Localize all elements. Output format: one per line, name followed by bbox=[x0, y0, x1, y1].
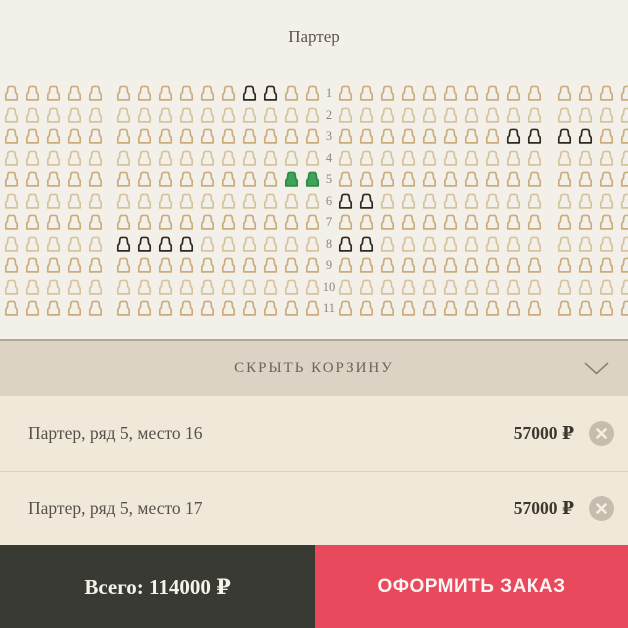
seat-available[interactable] bbox=[484, 214, 501, 231]
seat-available[interactable] bbox=[66, 214, 83, 231]
seat-available[interactable] bbox=[400, 300, 417, 317]
seat-available[interactable] bbox=[3, 150, 20, 167]
seat-available[interactable] bbox=[283, 257, 300, 274]
seat-available[interactable] bbox=[400, 107, 417, 124]
seat-available[interactable] bbox=[379, 150, 396, 167]
seat-available[interactable] bbox=[220, 236, 237, 253]
seat-available[interactable] bbox=[45, 107, 62, 124]
seat-available[interactable] bbox=[358, 150, 375, 167]
seat-available[interactable] bbox=[136, 214, 153, 231]
seat-available[interactable] bbox=[400, 150, 417, 167]
seat-available[interactable] bbox=[199, 128, 216, 145]
seat-available[interactable] bbox=[421, 85, 438, 102]
seat-available[interactable] bbox=[24, 107, 41, 124]
seat-available[interactable] bbox=[24, 193, 41, 210]
seat-available[interactable] bbox=[136, 257, 153, 274]
seat-available[interactable] bbox=[358, 128, 375, 145]
seat-available[interactable] bbox=[619, 171, 628, 188]
seat-unavailable[interactable] bbox=[337, 236, 354, 253]
seat-available[interactable] bbox=[45, 214, 62, 231]
seat-available[interactable] bbox=[178, 128, 195, 145]
seat-available[interactable] bbox=[262, 236, 279, 253]
seat-available[interactable] bbox=[3, 214, 20, 231]
seat-available[interactable] bbox=[379, 107, 396, 124]
seat-unavailable[interactable] bbox=[262, 85, 279, 102]
seat-available[interactable] bbox=[400, 257, 417, 274]
seat-available[interactable] bbox=[66, 236, 83, 253]
seat-available[interactable] bbox=[358, 107, 375, 124]
seat-available[interactable] bbox=[598, 300, 615, 317]
seat-available[interactable] bbox=[358, 279, 375, 296]
seat-available[interactable] bbox=[87, 128, 104, 145]
seat-available[interactable] bbox=[241, 128, 258, 145]
seat-available[interactable] bbox=[178, 193, 195, 210]
seat-available[interactable] bbox=[337, 171, 354, 188]
seat-available[interactable] bbox=[199, 214, 216, 231]
seat-available[interactable] bbox=[505, 214, 522, 231]
seat-available[interactable] bbox=[3, 107, 20, 124]
seat-available[interactable] bbox=[484, 257, 501, 274]
seat-available[interactable] bbox=[379, 193, 396, 210]
seat-available[interactable] bbox=[3, 279, 20, 296]
seat-available[interactable] bbox=[598, 85, 615, 102]
seat-unavailable[interactable] bbox=[115, 236, 132, 253]
seat-available[interactable] bbox=[577, 85, 594, 102]
seat-available[interactable] bbox=[66, 257, 83, 274]
seat-available[interactable] bbox=[136, 128, 153, 145]
seat-available[interactable] bbox=[442, 107, 459, 124]
remove-item-button[interactable] bbox=[589, 496, 614, 521]
seat-available[interactable] bbox=[241, 193, 258, 210]
seat-available[interactable] bbox=[157, 193, 174, 210]
seat-available[interactable] bbox=[619, 85, 628, 102]
seat-available[interactable] bbox=[577, 171, 594, 188]
seat-available[interactable] bbox=[87, 193, 104, 210]
seat-available[interactable] bbox=[262, 171, 279, 188]
seat-available[interactable] bbox=[199, 257, 216, 274]
seat-available[interactable] bbox=[379, 214, 396, 231]
remove-item-button[interactable] bbox=[589, 421, 614, 446]
seat-available[interactable] bbox=[526, 107, 543, 124]
seat-available[interactable] bbox=[45, 128, 62, 145]
seat-available[interactable] bbox=[157, 257, 174, 274]
seat-available[interactable] bbox=[241, 279, 258, 296]
seat-available[interactable] bbox=[66, 300, 83, 317]
seat-available[interactable] bbox=[283, 150, 300, 167]
seat-available[interactable] bbox=[157, 150, 174, 167]
seat-available[interactable] bbox=[421, 193, 438, 210]
seat-available[interactable] bbox=[421, 236, 438, 253]
seat-available[interactable] bbox=[3, 236, 20, 253]
seat-available[interactable] bbox=[45, 236, 62, 253]
seat-available[interactable] bbox=[262, 279, 279, 296]
seat-available[interactable] bbox=[87, 171, 104, 188]
seat-available[interactable] bbox=[400, 279, 417, 296]
seat-available[interactable] bbox=[178, 279, 195, 296]
seat-available[interactable] bbox=[241, 236, 258, 253]
seat-available[interactable] bbox=[157, 300, 174, 317]
seat-available[interactable] bbox=[556, 85, 573, 102]
seat-available[interactable] bbox=[304, 300, 321, 317]
seat-available[interactable] bbox=[3, 300, 20, 317]
seat-available[interactable] bbox=[400, 193, 417, 210]
seat-available[interactable] bbox=[136, 300, 153, 317]
seat-available[interactable] bbox=[199, 300, 216, 317]
seat-available[interactable] bbox=[157, 214, 174, 231]
seat-unavailable[interactable] bbox=[505, 128, 522, 145]
seat-available[interactable] bbox=[505, 257, 522, 274]
seat-available[interactable] bbox=[421, 171, 438, 188]
seat-available[interactable] bbox=[337, 279, 354, 296]
seat-available[interactable] bbox=[115, 85, 132, 102]
seat-available[interactable] bbox=[463, 150, 480, 167]
seat-available[interactable] bbox=[304, 257, 321, 274]
seat-available[interactable] bbox=[337, 214, 354, 231]
seat-available[interactable] bbox=[220, 257, 237, 274]
seat-available[interactable] bbox=[136, 85, 153, 102]
seat-available[interactable] bbox=[220, 150, 237, 167]
seat-available[interactable] bbox=[442, 150, 459, 167]
seat-available[interactable] bbox=[421, 128, 438, 145]
seat-available[interactable] bbox=[526, 150, 543, 167]
seat-available[interactable] bbox=[463, 257, 480, 274]
seat-available[interactable] bbox=[304, 128, 321, 145]
seat-available[interactable] bbox=[157, 85, 174, 102]
seat-available[interactable] bbox=[199, 236, 216, 253]
seat-unavailable[interactable] bbox=[556, 128, 573, 145]
seat-available[interactable] bbox=[199, 193, 216, 210]
seat-unavailable[interactable] bbox=[358, 193, 375, 210]
seat-available[interactable] bbox=[526, 193, 543, 210]
seat-available[interactable] bbox=[45, 279, 62, 296]
seat-available[interactable] bbox=[220, 193, 237, 210]
seat-available[interactable] bbox=[304, 193, 321, 210]
seat-available[interactable] bbox=[556, 236, 573, 253]
seat-available[interactable] bbox=[421, 257, 438, 274]
seat-available[interactable] bbox=[379, 85, 396, 102]
seat-available[interactable] bbox=[241, 300, 258, 317]
seat-available[interactable] bbox=[24, 257, 41, 274]
seat-available[interactable] bbox=[598, 128, 615, 145]
seat-available[interactable] bbox=[178, 214, 195, 231]
seat-available[interactable] bbox=[283, 300, 300, 317]
seat-available[interactable] bbox=[220, 107, 237, 124]
seat-available[interactable] bbox=[304, 279, 321, 296]
seat-available[interactable] bbox=[484, 193, 501, 210]
seat-available[interactable] bbox=[283, 193, 300, 210]
seat-available[interactable] bbox=[556, 214, 573, 231]
seat-available[interactable] bbox=[400, 171, 417, 188]
seat-selected[interactable] bbox=[283, 171, 300, 188]
seat-available[interactable] bbox=[66, 279, 83, 296]
seat-available[interactable] bbox=[262, 128, 279, 145]
seat-available[interactable] bbox=[283, 214, 300, 231]
seat-available[interactable] bbox=[262, 150, 279, 167]
seat-available[interactable] bbox=[442, 236, 459, 253]
seat-available[interactable] bbox=[442, 193, 459, 210]
seat-available[interactable] bbox=[3, 257, 20, 274]
seat-available[interactable] bbox=[24, 300, 41, 317]
seat-available[interactable] bbox=[379, 300, 396, 317]
seat-available[interactable] bbox=[619, 128, 628, 145]
seat-unavailable[interactable] bbox=[241, 85, 258, 102]
seat-available[interactable] bbox=[304, 150, 321, 167]
seat-available[interactable] bbox=[66, 150, 83, 167]
seat-available[interactable] bbox=[178, 300, 195, 317]
seat-available[interactable] bbox=[463, 193, 480, 210]
seat-available[interactable] bbox=[220, 171, 237, 188]
seat-available[interactable] bbox=[45, 150, 62, 167]
seat-available[interactable] bbox=[379, 171, 396, 188]
seat-available[interactable] bbox=[358, 257, 375, 274]
seat-available[interactable] bbox=[337, 128, 354, 145]
seat-available[interactable] bbox=[505, 85, 522, 102]
seat-available[interactable] bbox=[304, 85, 321, 102]
seat-available[interactable] bbox=[577, 107, 594, 124]
seat-available[interactable] bbox=[442, 128, 459, 145]
seat-unavailable[interactable] bbox=[358, 236, 375, 253]
seat-available[interactable] bbox=[442, 300, 459, 317]
seat-available[interactable] bbox=[619, 107, 628, 124]
seat-available[interactable] bbox=[337, 150, 354, 167]
seat-available[interactable] bbox=[241, 150, 258, 167]
seat-available[interactable] bbox=[505, 236, 522, 253]
seat-unavailable[interactable] bbox=[178, 236, 195, 253]
seat-available[interactable] bbox=[115, 150, 132, 167]
seat-available[interactable] bbox=[484, 300, 501, 317]
seat-available[interactable] bbox=[262, 214, 279, 231]
seat-available[interactable] bbox=[87, 107, 104, 124]
seat-available[interactable] bbox=[598, 214, 615, 231]
seat-available[interactable] bbox=[199, 171, 216, 188]
seat-available[interactable] bbox=[556, 107, 573, 124]
seat-available[interactable] bbox=[379, 279, 396, 296]
seat-available[interactable] bbox=[283, 107, 300, 124]
seat-available[interactable] bbox=[87, 279, 104, 296]
seat-available[interactable] bbox=[484, 85, 501, 102]
seat-available[interactable] bbox=[463, 85, 480, 102]
seat-available[interactable] bbox=[526, 279, 543, 296]
seat-available[interactable] bbox=[619, 236, 628, 253]
seat-available[interactable] bbox=[115, 107, 132, 124]
seat-available[interactable] bbox=[24, 150, 41, 167]
seat-available[interactable] bbox=[136, 150, 153, 167]
seat-available[interactable] bbox=[199, 150, 216, 167]
seat-available[interactable] bbox=[262, 107, 279, 124]
seat-available[interactable] bbox=[199, 279, 216, 296]
seat-available[interactable] bbox=[463, 171, 480, 188]
seat-available[interactable] bbox=[556, 193, 573, 210]
seat-available[interactable] bbox=[505, 279, 522, 296]
seat-available[interactable] bbox=[421, 150, 438, 167]
seat-unavailable[interactable] bbox=[526, 128, 543, 145]
seat-available[interactable] bbox=[220, 85, 237, 102]
seat-available[interactable] bbox=[66, 85, 83, 102]
seat-unavailable[interactable] bbox=[337, 193, 354, 210]
seat-available[interactable] bbox=[262, 300, 279, 317]
seat-available[interactable] bbox=[115, 214, 132, 231]
seat-unavailable[interactable] bbox=[136, 236, 153, 253]
seat-available[interactable] bbox=[262, 257, 279, 274]
seat-available[interactable] bbox=[115, 193, 132, 210]
seat-available[interactable] bbox=[115, 171, 132, 188]
seat-available[interactable] bbox=[115, 279, 132, 296]
seat-available[interactable] bbox=[379, 257, 396, 274]
seat-available[interactable] bbox=[24, 214, 41, 231]
seat-available[interactable] bbox=[598, 257, 615, 274]
seat-available[interactable] bbox=[577, 193, 594, 210]
seat-available[interactable] bbox=[598, 107, 615, 124]
seat-available[interactable] bbox=[598, 279, 615, 296]
seat-available[interactable] bbox=[3, 171, 20, 188]
seat-available[interactable] bbox=[24, 279, 41, 296]
seat-available[interactable] bbox=[442, 85, 459, 102]
seat-available[interactable] bbox=[220, 279, 237, 296]
seat-available[interactable] bbox=[304, 236, 321, 253]
seat-available[interactable] bbox=[136, 279, 153, 296]
seat-available[interactable] bbox=[400, 236, 417, 253]
seat-available[interactable] bbox=[3, 193, 20, 210]
seat-available[interactable] bbox=[157, 107, 174, 124]
seat-available[interactable] bbox=[66, 128, 83, 145]
seat-available[interactable] bbox=[598, 150, 615, 167]
seat-available[interactable] bbox=[178, 150, 195, 167]
seat-available[interactable] bbox=[45, 193, 62, 210]
seat-available[interactable] bbox=[24, 236, 41, 253]
seat-available[interactable] bbox=[619, 214, 628, 231]
seat-available[interactable] bbox=[3, 85, 20, 102]
seat-available[interactable] bbox=[157, 171, 174, 188]
seat-available[interactable] bbox=[178, 107, 195, 124]
seat-available[interactable] bbox=[241, 214, 258, 231]
seat-available[interactable] bbox=[484, 128, 501, 145]
seat-available[interactable] bbox=[556, 279, 573, 296]
seat-available[interactable] bbox=[220, 214, 237, 231]
seat-available[interactable] bbox=[24, 85, 41, 102]
seat-available[interactable] bbox=[337, 107, 354, 124]
seat-available[interactable] bbox=[66, 171, 83, 188]
seat-available[interactable] bbox=[619, 300, 628, 317]
seat-available[interactable] bbox=[484, 107, 501, 124]
seat-available[interactable] bbox=[87, 236, 104, 253]
seat-available[interactable] bbox=[157, 128, 174, 145]
seat-available[interactable] bbox=[463, 214, 480, 231]
seat-available[interactable] bbox=[463, 128, 480, 145]
seat-available[interactable] bbox=[463, 236, 480, 253]
seat-available[interactable] bbox=[66, 193, 83, 210]
seat-available[interactable] bbox=[619, 257, 628, 274]
seat-unavailable[interactable] bbox=[577, 128, 594, 145]
seat-available[interactable] bbox=[526, 300, 543, 317]
seat-available[interactable] bbox=[526, 236, 543, 253]
seat-available[interactable] bbox=[598, 171, 615, 188]
seat-available[interactable] bbox=[556, 300, 573, 317]
seat-available[interactable] bbox=[358, 85, 375, 102]
seat-available[interactable] bbox=[304, 214, 321, 231]
seat-available[interactable] bbox=[505, 193, 522, 210]
seat-available[interactable] bbox=[484, 171, 501, 188]
seat-available[interactable] bbox=[556, 171, 573, 188]
seat-available[interactable] bbox=[484, 150, 501, 167]
seat-available[interactable] bbox=[358, 171, 375, 188]
seat-available[interactable] bbox=[577, 150, 594, 167]
chevron-down-icon[interactable] bbox=[583, 361, 610, 376]
seat-available[interactable] bbox=[421, 214, 438, 231]
seat-unavailable[interactable] bbox=[157, 236, 174, 253]
seat-available[interactable] bbox=[87, 257, 104, 274]
seat-available[interactable] bbox=[526, 171, 543, 188]
seat-available[interactable] bbox=[598, 193, 615, 210]
seat-available[interactable] bbox=[505, 107, 522, 124]
seat-available[interactable] bbox=[598, 236, 615, 253]
seat-available[interactable] bbox=[199, 85, 216, 102]
seat-available[interactable] bbox=[45, 171, 62, 188]
seat-available[interactable] bbox=[556, 150, 573, 167]
seat-available[interactable] bbox=[400, 85, 417, 102]
seat-available[interactable] bbox=[66, 107, 83, 124]
seat-available[interactable] bbox=[442, 214, 459, 231]
seat-available[interactable] bbox=[220, 128, 237, 145]
seat-available[interactable] bbox=[577, 236, 594, 253]
seat-available[interactable] bbox=[283, 85, 300, 102]
seat-available[interactable] bbox=[442, 257, 459, 274]
seat-available[interactable] bbox=[526, 85, 543, 102]
seat-available[interactable] bbox=[463, 107, 480, 124]
seat-available[interactable] bbox=[379, 128, 396, 145]
seat-available[interactable] bbox=[178, 85, 195, 102]
seat-available[interactable] bbox=[421, 107, 438, 124]
seat-available[interactable] bbox=[442, 171, 459, 188]
seat-available[interactable] bbox=[505, 171, 522, 188]
seat-available[interactable] bbox=[337, 85, 354, 102]
seat-available[interactable] bbox=[400, 214, 417, 231]
seat-available[interactable] bbox=[115, 257, 132, 274]
seat-available[interactable] bbox=[577, 300, 594, 317]
seat-available[interactable] bbox=[136, 107, 153, 124]
seat-available[interactable] bbox=[262, 193, 279, 210]
seat-available[interactable] bbox=[136, 171, 153, 188]
seat-available[interactable] bbox=[358, 214, 375, 231]
seat-available[interactable] bbox=[619, 150, 628, 167]
seat-available[interactable] bbox=[526, 257, 543, 274]
seat-available[interactable] bbox=[421, 279, 438, 296]
seat-available[interactable] bbox=[283, 236, 300, 253]
seat-available[interactable] bbox=[283, 128, 300, 145]
seat-available[interactable] bbox=[136, 193, 153, 210]
checkout-button[interactable]: ОФОРМИТЬ ЗАКАЗ bbox=[315, 545, 628, 628]
seat-available[interactable] bbox=[484, 236, 501, 253]
seat-available[interactable] bbox=[24, 171, 41, 188]
seat-available[interactable] bbox=[220, 300, 237, 317]
seat-available[interactable] bbox=[421, 300, 438, 317]
seat-available[interactable] bbox=[442, 279, 459, 296]
seat-available[interactable] bbox=[157, 279, 174, 296]
seat-available[interactable] bbox=[45, 300, 62, 317]
seat-available[interactable] bbox=[3, 128, 20, 145]
seat-available[interactable] bbox=[115, 300, 132, 317]
seat-available[interactable] bbox=[379, 236, 396, 253]
seat-available[interactable] bbox=[577, 279, 594, 296]
cart-toggle-bar[interactable]: СКРЫТЬ КОРЗИНУ bbox=[0, 339, 628, 396]
seat-available[interactable] bbox=[505, 300, 522, 317]
seat-available[interactable] bbox=[241, 257, 258, 274]
seat-available[interactable] bbox=[241, 107, 258, 124]
seat-available[interactable] bbox=[358, 300, 375, 317]
seat-available[interactable] bbox=[577, 257, 594, 274]
seat-available[interactable] bbox=[24, 128, 41, 145]
seat-available[interactable] bbox=[556, 257, 573, 274]
seat-available[interactable] bbox=[87, 300, 104, 317]
